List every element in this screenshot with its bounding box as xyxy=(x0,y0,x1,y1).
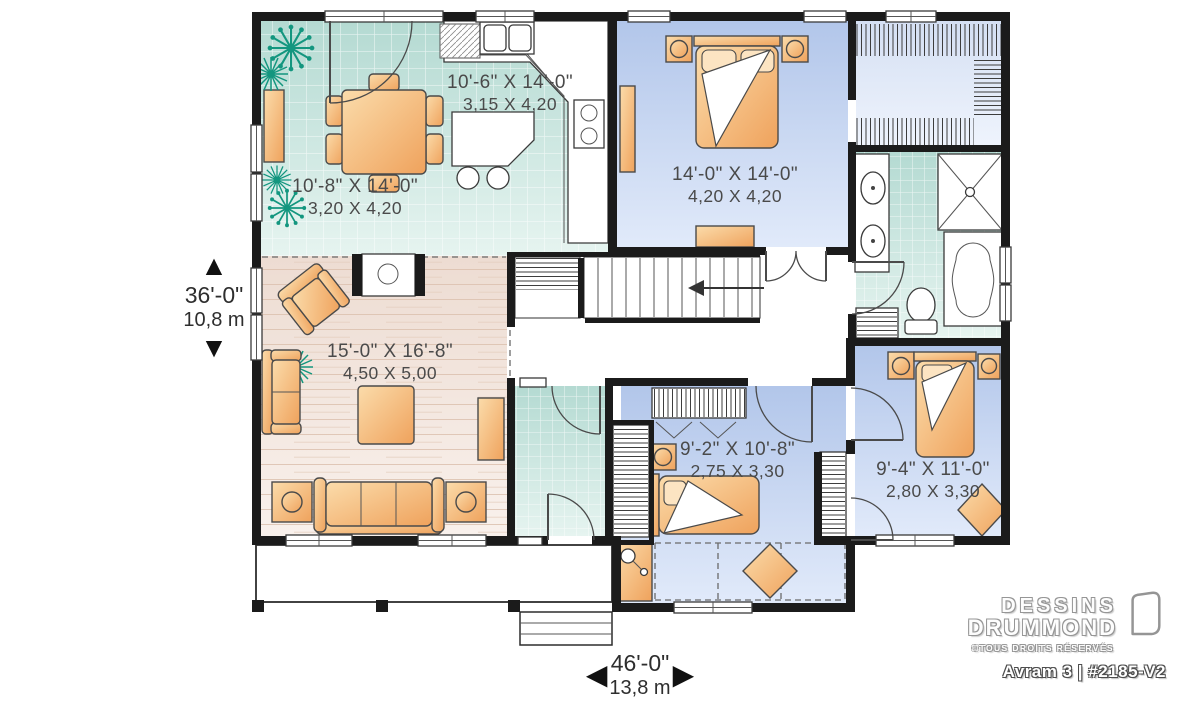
living-room-label: 15'-0" X 16'-8" 4,50 X 5,00 xyxy=(290,341,490,384)
kitchen-label: 10'-6" X 14'-0" 3,15 X 4,20 xyxy=(410,72,610,115)
nightstand xyxy=(978,354,1000,379)
nightstand xyxy=(888,352,914,379)
clothes-rack xyxy=(856,24,1002,56)
closet-shelves xyxy=(974,58,1002,118)
sidelight-window xyxy=(518,537,542,545)
drummond-d-logo-icon xyxy=(1124,588,1166,640)
double-vanity xyxy=(855,154,889,272)
bathtub xyxy=(944,232,1002,326)
island-stool xyxy=(487,167,509,189)
bedroom3-bed xyxy=(914,352,976,457)
depth-metric: 10,8 m xyxy=(162,309,266,332)
entry-tile-grid xyxy=(515,386,605,536)
floor-plan-sheet: 10'-8" X 14'-0" 3,20 X 4,20 10'-6" X 14'… xyxy=(0,0,1200,711)
master-imperial: 14'-0" X 14'-0" xyxy=(635,164,835,186)
depth-imperial: 36'-0" xyxy=(162,282,266,309)
nightstand xyxy=(666,36,692,62)
width-dimension: ◀ 46'-0" 13,8 m ▶ xyxy=(548,650,732,700)
bedroom2-bed xyxy=(650,474,759,536)
buffet xyxy=(264,90,284,162)
desk-with-lamp xyxy=(616,543,652,601)
brand-name-line1: DESSINS xyxy=(968,596,1117,616)
bedroom3-label: 9'-4" X 11'-0" 2,80 X 3,30 xyxy=(833,459,1033,502)
dresser xyxy=(620,86,635,172)
master-bed xyxy=(694,36,780,148)
fireplace-side xyxy=(352,254,362,296)
dresser xyxy=(696,226,754,247)
fireplace xyxy=(362,254,415,296)
dining-imperial: 10'-8" X 14'-0" xyxy=(255,176,455,198)
porch-post xyxy=(252,600,264,612)
toilet xyxy=(905,288,937,334)
living-metric: 4,50 X 5,00 xyxy=(290,363,490,384)
sidelight-window xyxy=(520,378,546,387)
master-bedroom-label: 14'-0" X 14'-0" 4,20 X 4,20 xyxy=(635,164,835,207)
master-metric: 4,20 X 4,20 xyxy=(635,186,835,207)
width-metric: 13,8 m xyxy=(609,677,670,700)
plan-id-text: Avram 3 | #2185-V2 xyxy=(938,662,1166,682)
coffee-table xyxy=(358,386,414,444)
left-arrow-icon: ◀ xyxy=(586,661,608,689)
brand-block: DESSINS DRUMMOND ©TOUS DROITS RÉSERVÉS A… xyxy=(938,588,1166,682)
master-double-door xyxy=(766,251,826,281)
end-table-lamp xyxy=(272,482,312,522)
bedroom3-imperial: 9'-4" X 11'-0" xyxy=(833,459,1033,481)
island-stool xyxy=(457,167,479,189)
end-table-lamp xyxy=(446,482,486,522)
stair-lower-run xyxy=(516,258,579,290)
sofa xyxy=(314,478,444,534)
rights-reserved-text: ©TOUS DROITS RÉSERVÉS xyxy=(938,643,1114,653)
bedroom2-imperial: 9'-2" X 10'-8" xyxy=(635,439,840,461)
fireplace-side xyxy=(415,254,425,296)
dining-metric: 3,20 X 4,20 xyxy=(255,198,455,219)
bedroom3-metric: 2,80 X 3,30 xyxy=(833,481,1033,502)
brand-name-line2: DRUMMOND xyxy=(968,616,1117,640)
kitchen-sink xyxy=(480,22,534,54)
depth-dimension: ▲ 36'-0" 10,8 m ▼ xyxy=(162,252,266,362)
bedroom2-metric: 2,75 X 3,30 xyxy=(635,461,840,482)
dining-room-label: 10'-8" X 14'-0" 3,20 X 4,20 xyxy=(255,176,455,219)
down-arrow-icon: ▼ xyxy=(162,334,266,362)
right-arrow-icon: ▶ xyxy=(673,661,695,689)
nightstand xyxy=(782,36,808,62)
porch-post xyxy=(376,600,388,612)
tv-console xyxy=(478,398,504,460)
width-imperial: 46'-0" xyxy=(609,650,670,677)
porch-steps xyxy=(520,612,612,645)
shower xyxy=(938,154,1002,230)
staircase xyxy=(515,257,764,318)
patio-door xyxy=(325,11,443,22)
living-imperial: 15'-0" X 16'-8" xyxy=(290,341,490,363)
kitchen-imperial: 10'-6" X 14'-0" xyxy=(410,72,610,94)
kitchen-metric: 3,15 X 4,20 xyxy=(410,94,610,115)
porch xyxy=(256,545,612,645)
bedroom2-label: 9'-2" X 10'-8" 2,75 X 3,30 xyxy=(635,439,840,482)
clothes-rack xyxy=(856,118,974,146)
porch-post xyxy=(508,600,520,612)
up-arrow-icon: ▲ xyxy=(162,252,266,280)
